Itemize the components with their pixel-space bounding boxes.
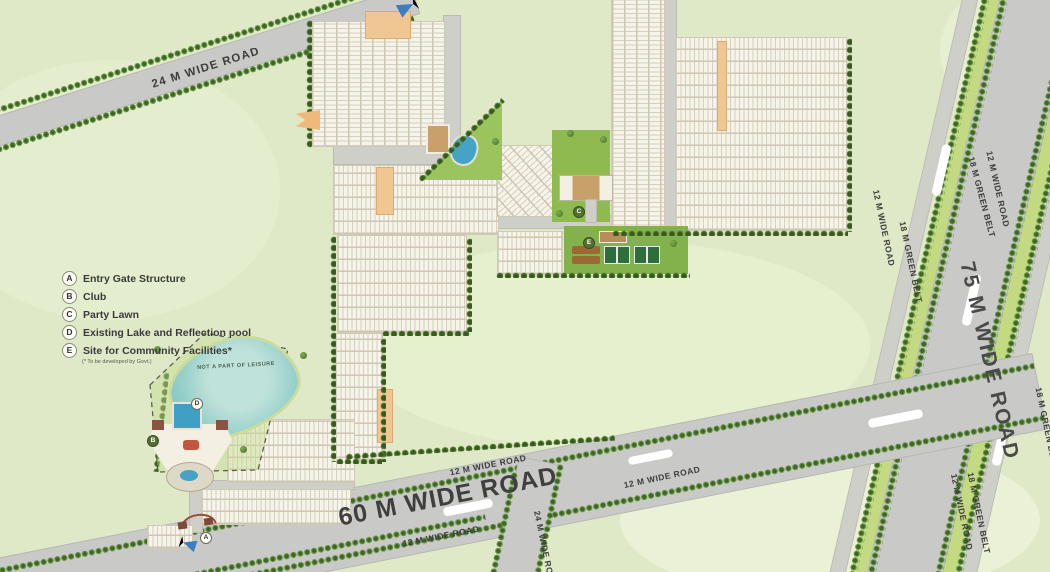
legend-item-entry-gate: A Entry Gate Structure <box>62 271 251 286</box>
legend-badge-a: A <box>62 271 77 286</box>
marker-party-lawn: C <box>573 206 585 218</box>
club-feature <box>183 440 199 450</box>
legend-badge-e: E <box>62 343 77 358</box>
tree <box>567 130 574 137</box>
site-master-plan: NOT A PART OF LEISURE 24 M WIDE ROAD 60 … <box>0 0 1050 572</box>
plot-block <box>498 232 562 274</box>
hedge-row <box>382 330 470 336</box>
tree <box>240 446 247 453</box>
estate-road <box>200 481 354 489</box>
flag-marker <box>296 110 320 130</box>
legend: A Entry Gate Structure B Club C Party La… <box>62 271 251 365</box>
club-roof <box>216 420 228 430</box>
tree <box>492 138 499 145</box>
lawn-path <box>586 200 596 222</box>
estate-road <box>664 0 676 230</box>
legend-label: Party Lawn <box>83 309 139 321</box>
hedge-row <box>330 236 336 462</box>
tree <box>300 352 307 359</box>
plot-block <box>676 38 846 230</box>
legend-label: Site for Community Facilities* <box>83 345 232 357</box>
legend-item-community-facilities: E Site for Community Facilities* <box>62 343 251 358</box>
marker-entry-gate: A <box>200 532 212 544</box>
reflection-pool <box>180 470 198 481</box>
legend-item-lake: D Existing Lake and Reflection pool <box>62 325 251 340</box>
road-label-12m: 12 M WIDE ROAD <box>871 189 897 267</box>
sports-court <box>634 246 660 264</box>
hedge-row <box>336 458 382 464</box>
park-building <box>428 126 448 152</box>
plot-block <box>312 22 444 146</box>
tan-plot-block <box>718 42 726 130</box>
marker-community-facilities: E <box>583 237 595 249</box>
party-lawn-building <box>560 176 612 200</box>
marker-lake: D <box>191 398 203 410</box>
hedge-row <box>496 272 690 278</box>
plot-block <box>338 236 466 332</box>
marker-club: B <box>147 435 159 447</box>
legend-label: Existing Lake and Reflection pool <box>83 327 251 339</box>
hedge-row <box>612 230 848 236</box>
hedge-row <box>846 38 852 232</box>
tree <box>670 240 677 247</box>
legend-item-club: B Club <box>62 289 251 304</box>
entry-gate-pier <box>204 517 214 525</box>
plot-block <box>202 490 350 524</box>
entry-gate-pier <box>178 521 188 529</box>
legend-badge-d: D <box>62 325 77 340</box>
hedge-row <box>466 238 472 332</box>
hedge-row <box>306 20 312 148</box>
facility-shed <box>572 256 600 264</box>
tree <box>600 136 607 143</box>
hedge-row <box>380 338 386 462</box>
tree <box>556 210 563 217</box>
plot-block <box>612 0 664 230</box>
legend-badge-b: B <box>62 289 77 304</box>
sports-court <box>604 246 630 264</box>
tan-plot-block <box>377 168 393 214</box>
legend-footnote: (* To be developed by Govt.) <box>82 359 251 365</box>
legend-label: Entry Gate Structure <box>83 273 186 285</box>
legend-label: Club <box>83 291 106 303</box>
legend-badge-c: C <box>62 307 77 322</box>
club-roof <box>152 420 164 430</box>
legend-item-party-lawn: C Party Lawn <box>62 307 251 322</box>
